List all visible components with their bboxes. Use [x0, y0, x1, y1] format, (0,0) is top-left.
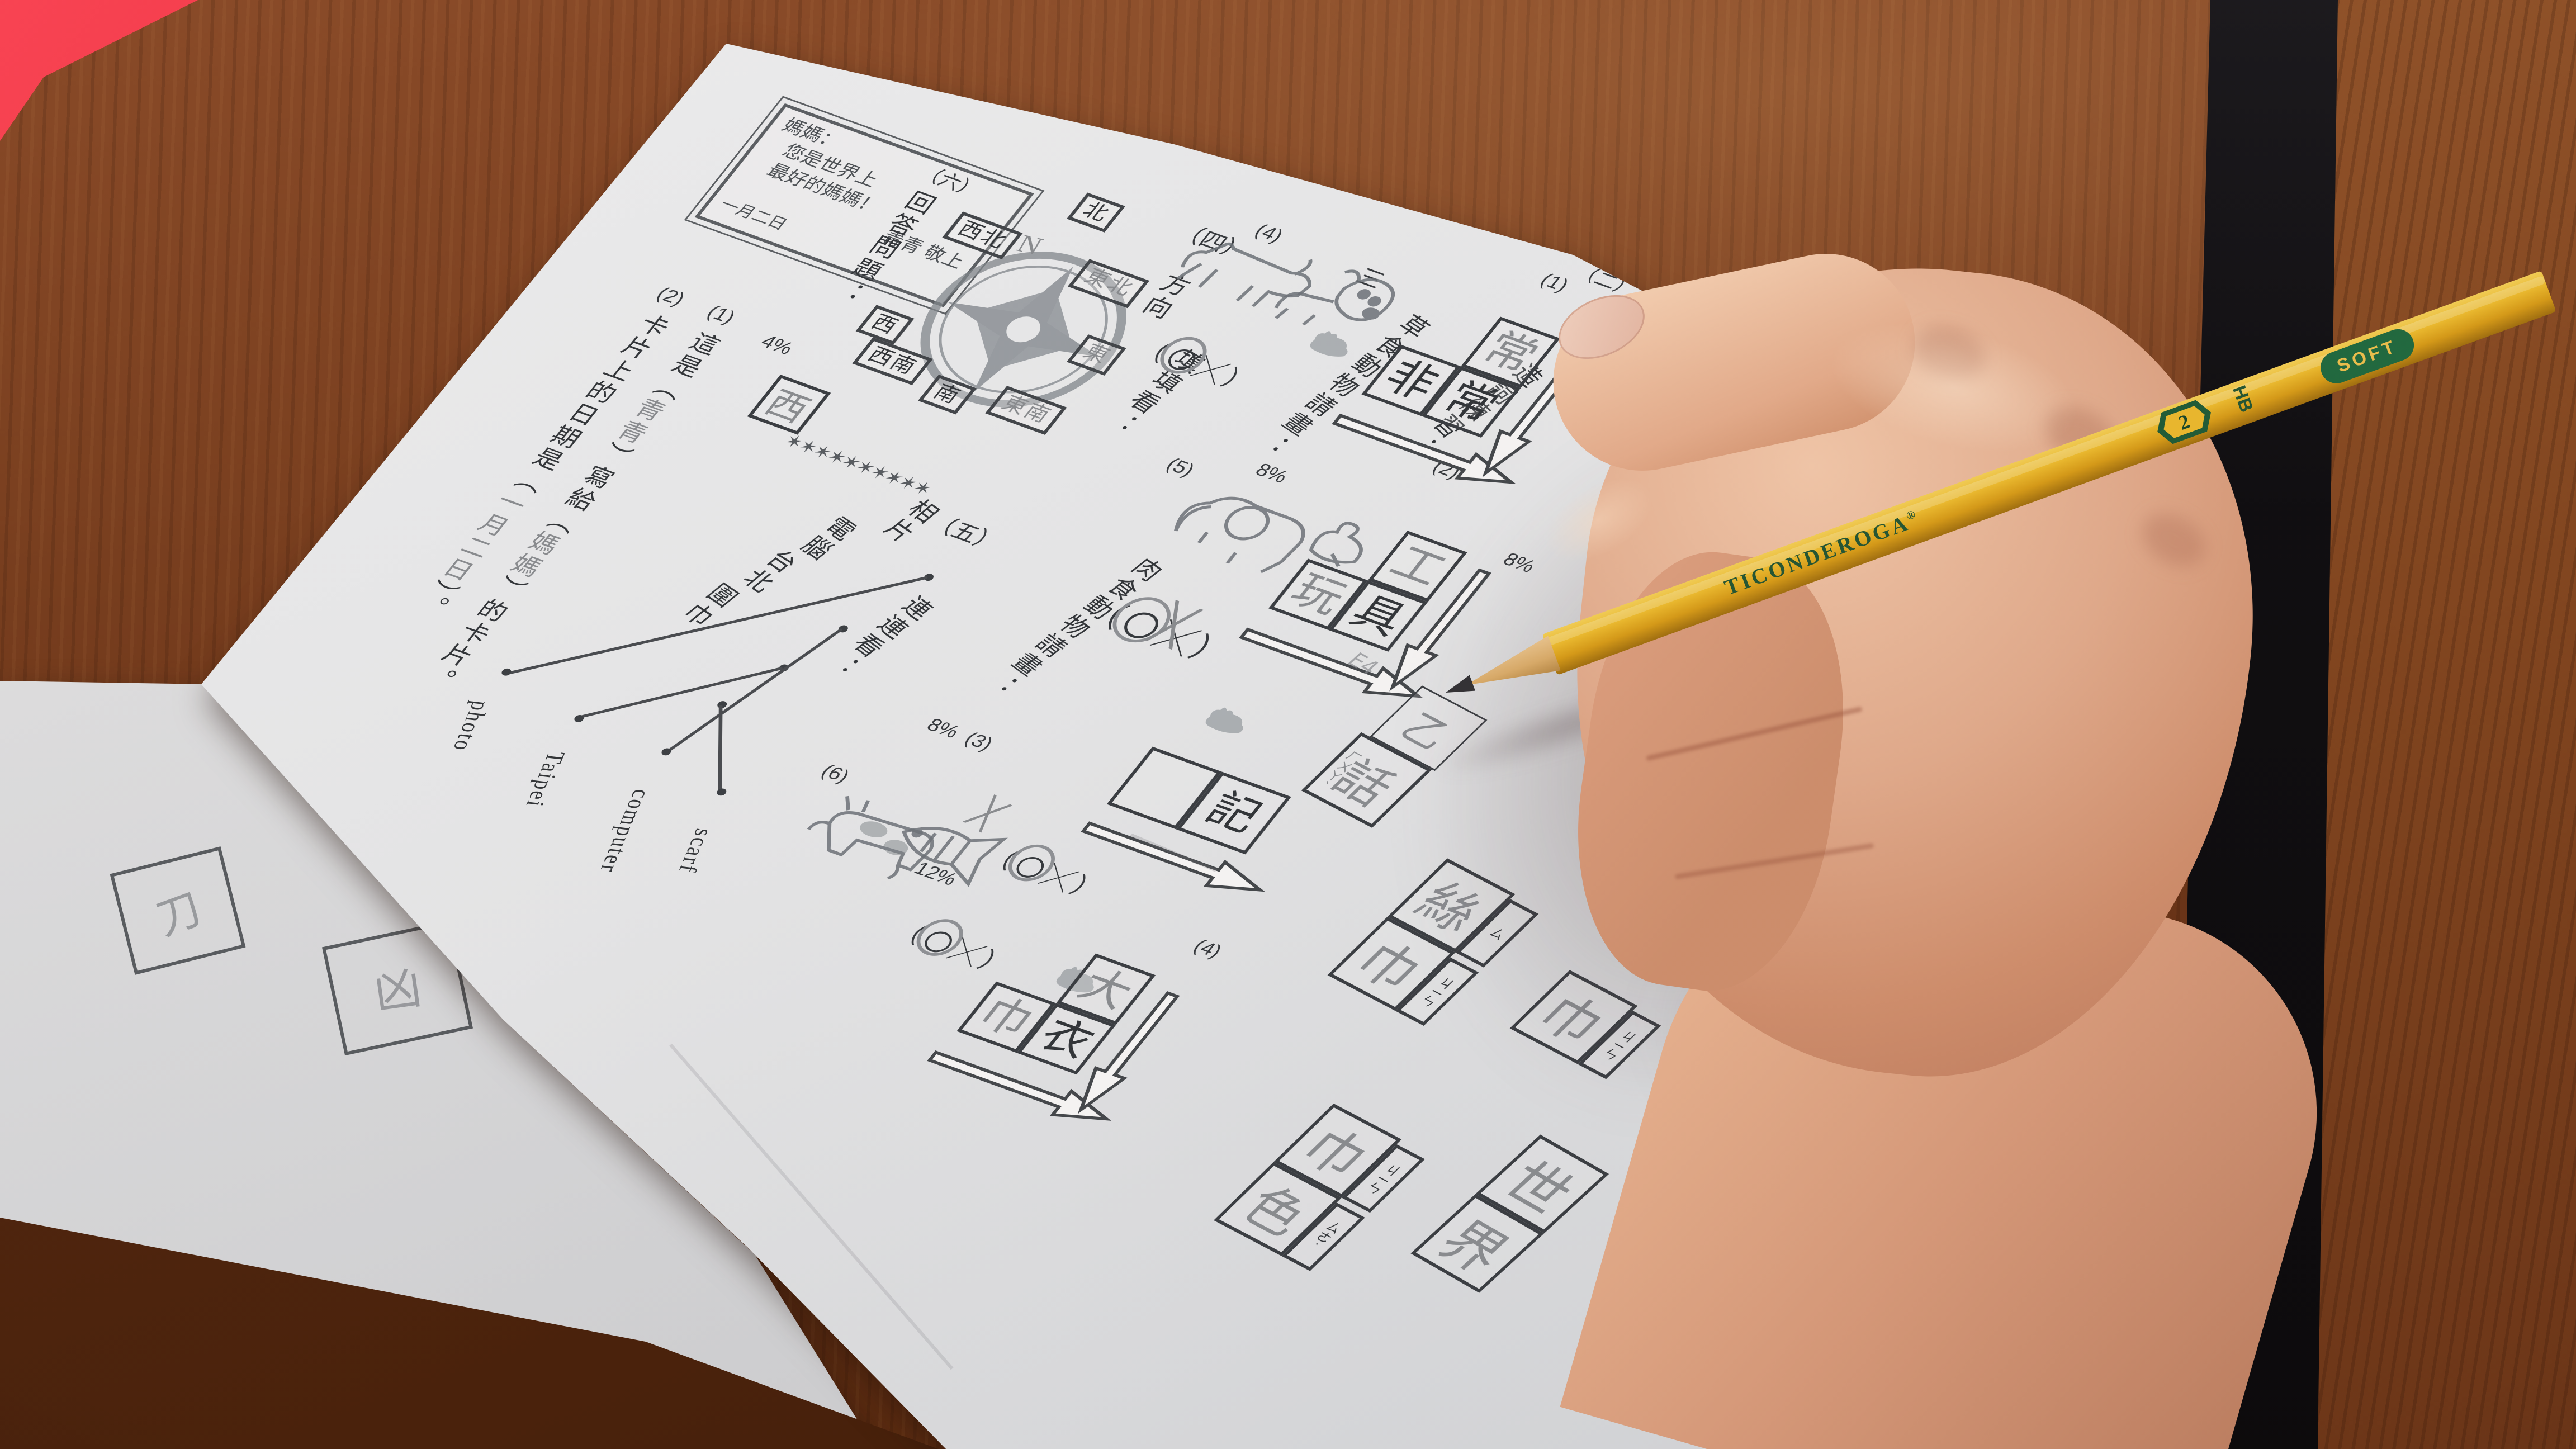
ox-answer-item: （〇╳）╳: [1077, 587, 1246, 675]
item-4-label: (4): [1189, 935, 1227, 962]
match-dot: [715, 787, 728, 797]
pencil-x-mark: ╳: [964, 794, 1012, 832]
item1-text: 這是（青青）寫給（媽媽）的卡片。: [414, 327, 725, 693]
item2-text: 卡片上的日期是（一月二日）。: [406, 309, 675, 621]
item-3-label: (3): [960, 728, 997, 755]
match-word-photo-en: photo: [446, 699, 495, 753]
subitem-1: (1): [1536, 269, 1573, 296]
section-five-title: 連連看：: [819, 590, 937, 681]
compass-box-north: 北: [1067, 193, 1125, 233]
item1-number: (1): [703, 301, 740, 328]
answer-box-west: 西: [747, 375, 831, 435]
match-word-taipei-en: Taipei: [518, 750, 570, 809]
stray-pencil-line: [670, 1044, 953, 1370]
item2-number: (2): [652, 283, 689, 310]
photo-scene: 刀 凶 北 。 媽媽： 您是世界上 最好的媽媽！ 青青 敬上 一月二日: [0, 0, 2576, 1449]
section-five-score: 8%: [922, 714, 964, 742]
match-line: [718, 705, 723, 793]
zigzag-decoration: ✶✶✶✶✶✶✶✶✶✶: [779, 430, 936, 500]
ox-answer-item: （〇╳）: [886, 910, 1025, 983]
match-word-scarf-en: scarf: [671, 827, 719, 875]
match-word-taipei-cn: 台北: [733, 544, 803, 598]
match-dot: [500, 667, 513, 677]
rabbit-stamp: [1195, 698, 1258, 741]
pencil-graphite-tip: [1443, 675, 1475, 700]
section-six-score: 4%: [756, 330, 798, 358]
match-word-computer-cn: 電腦: [792, 511, 861, 565]
match-word-computer-en: computer: [593, 788, 656, 874]
